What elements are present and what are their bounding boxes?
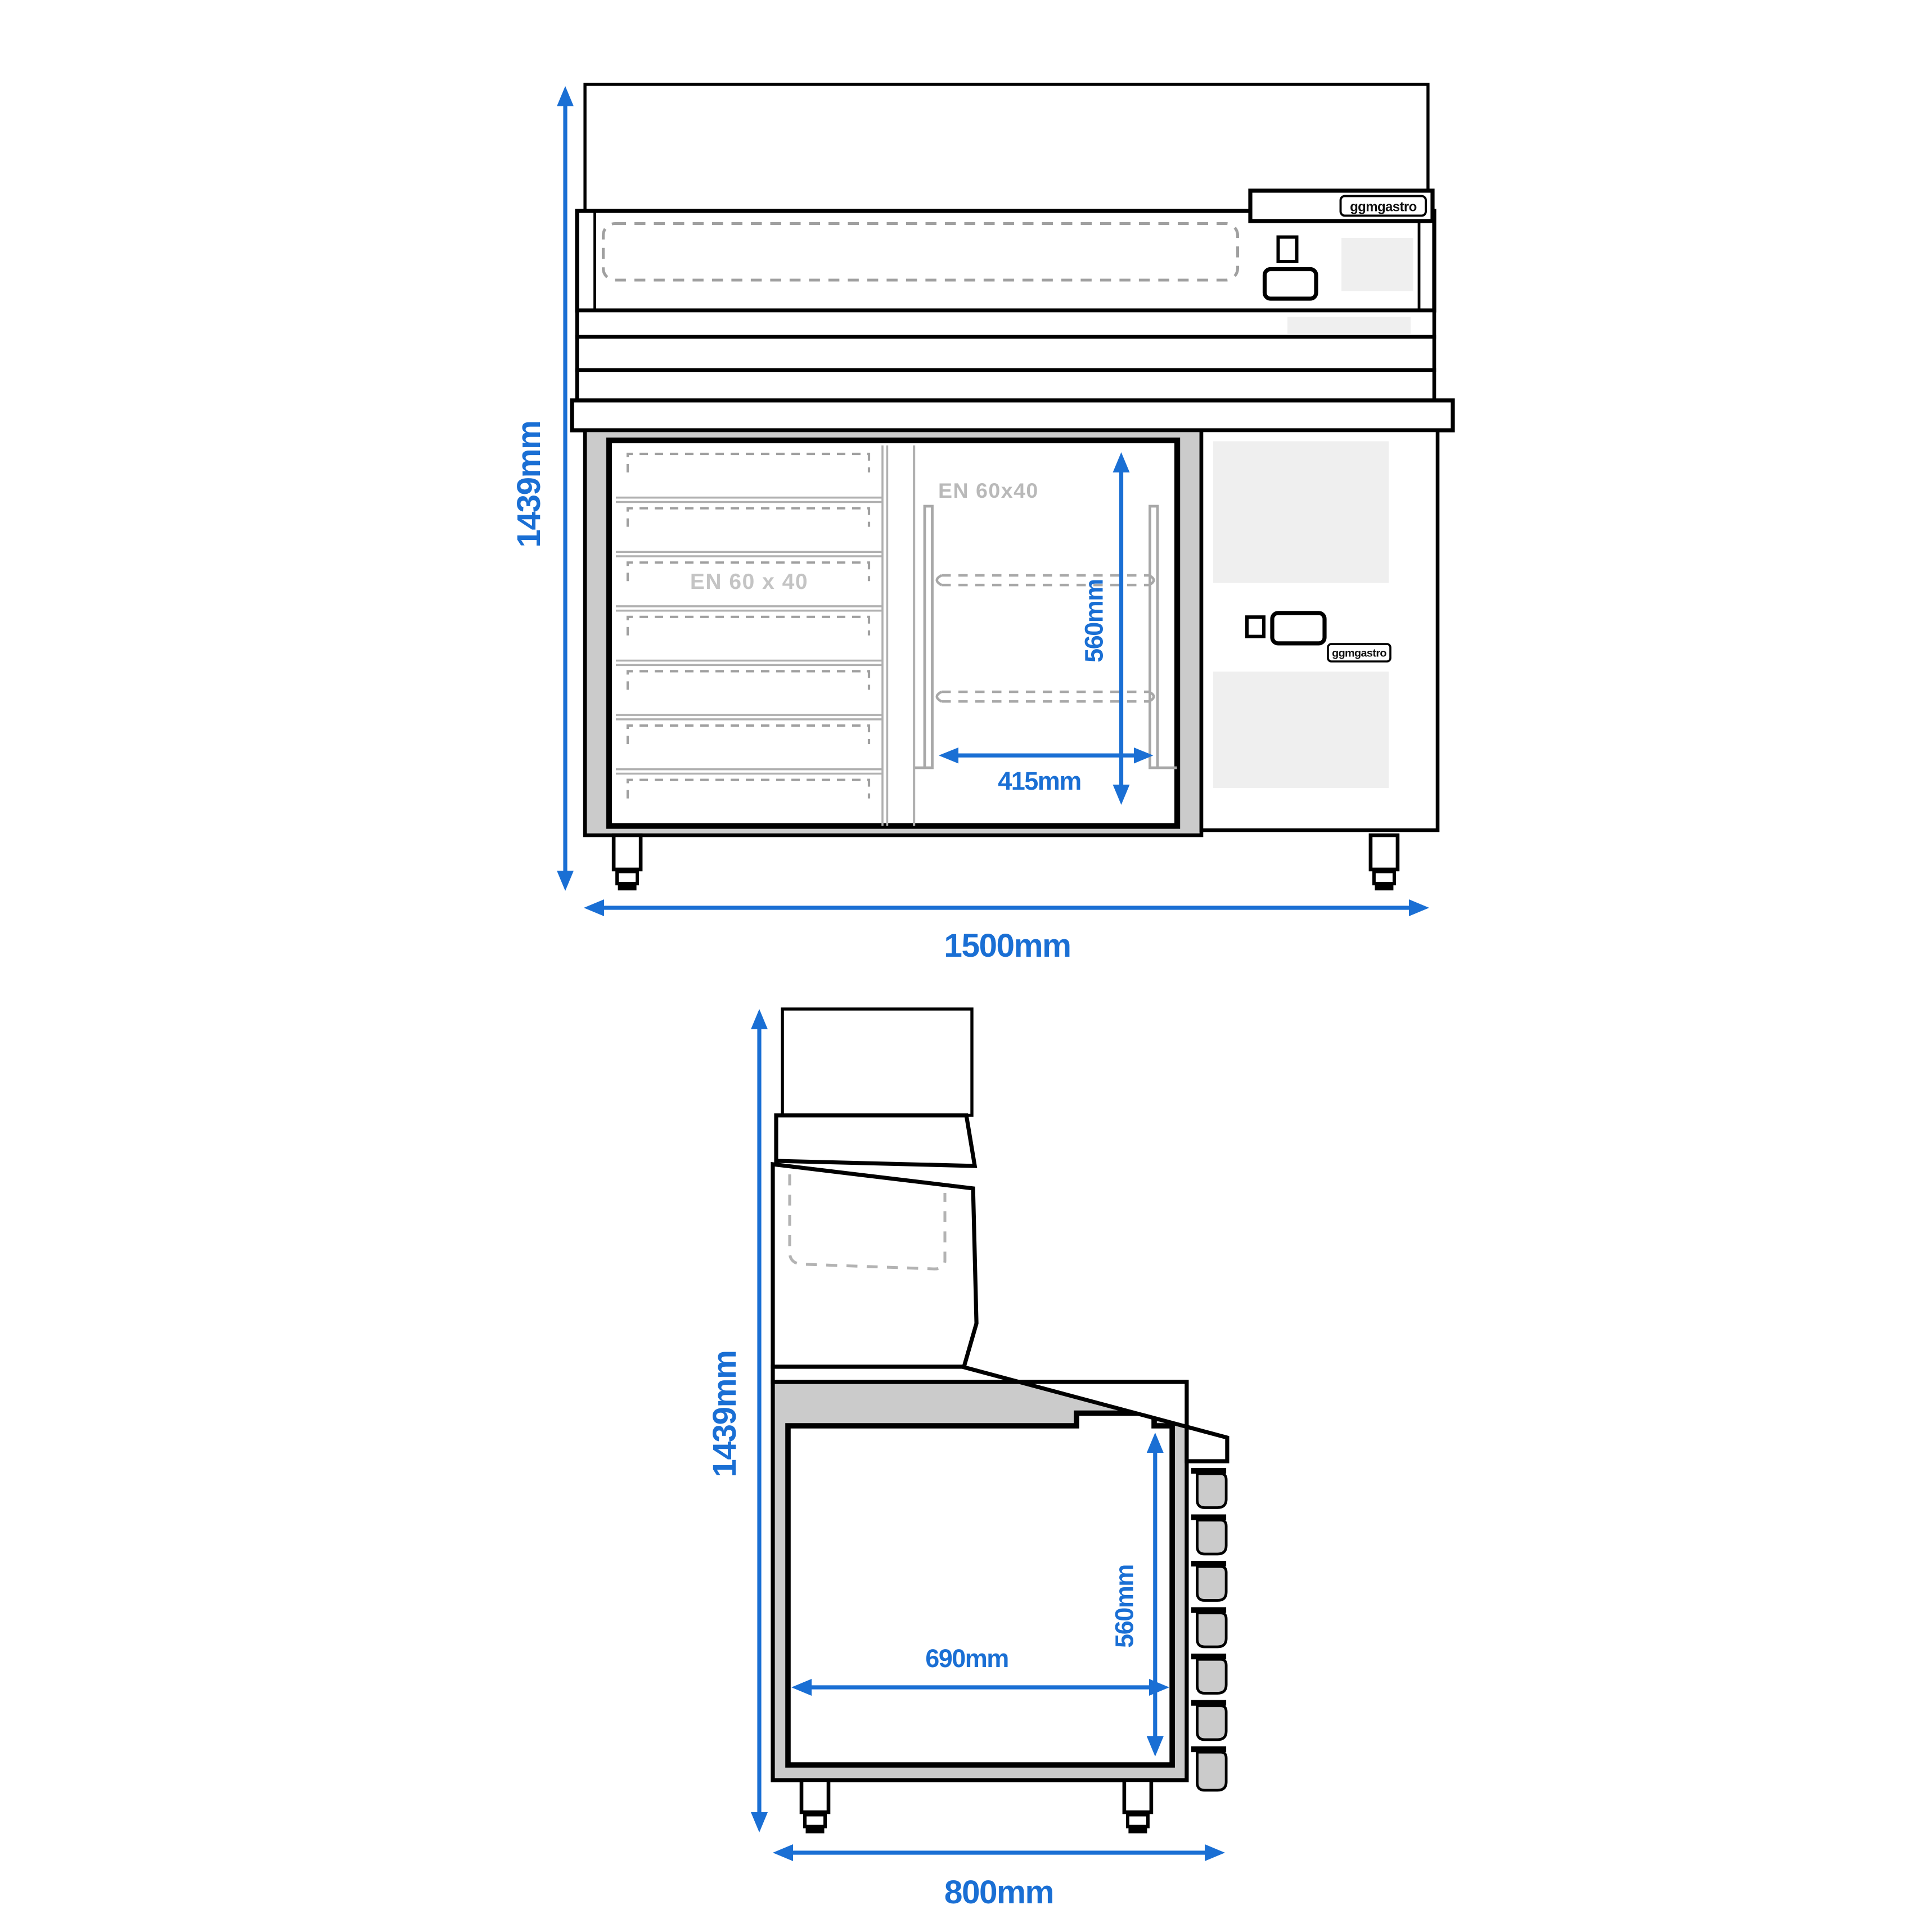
arrowhead-right-icon — [1409, 899, 1429, 916]
side-depth-dimension: 800mm — [773, 1844, 1225, 1911]
side-height-dimension: 1439mm — [706, 1009, 768, 1832]
leg — [1124, 1780, 1151, 1812]
brand-logo-text: ggmgastro — [1350, 200, 1417, 215]
arrowhead-right-icon — [1205, 1844, 1225, 1861]
side-depth-label: 800mm — [944, 1874, 1053, 1911]
front-inner-width-label: 415mm — [998, 767, 1081, 795]
front-door-standard-label: EN 60x40 — [938, 479, 1039, 502]
front-machine-vent-top — [1213, 442, 1389, 583]
leg-pad — [1128, 1827, 1147, 1834]
side-legs — [801, 1780, 1151, 1834]
leg-foot — [1374, 872, 1394, 884]
side-case-collar — [776, 1115, 975, 1166]
leg-foot — [805, 1815, 825, 1827]
leg — [801, 1780, 828, 1812]
bracket — [1191, 1700, 1226, 1740]
front-width-dimension: 1500mm — [584, 899, 1429, 964]
leg-pad — [1375, 884, 1393, 890]
brand-logo-text-small: ggmgastro — [1332, 647, 1386, 660]
front-case-vent-panel — [1341, 238, 1413, 291]
arrowhead-down-icon — [751, 1812, 768, 1832]
front-machine-thermostat-display — [1272, 613, 1325, 643]
front-view: ggmgastro EN — [511, 84, 1453, 964]
front-width-label: 1500mm — [944, 927, 1070, 964]
side-view: 1439mm 800mm 690mm 560mm — [706, 1009, 1227, 1911]
side-height-label: 1439mm — [706, 1350, 743, 1477]
bracket — [1191, 1746, 1226, 1790]
leg-foot — [617, 872, 637, 884]
front-height-dimension: 1439mm — [511, 86, 574, 891]
side-interior-depth-label: 690mm — [925, 1644, 1008, 1673]
arrowhead-up-icon — [557, 86, 574, 106]
front-legs — [614, 835, 1398, 890]
front-band-vent-chip — [1287, 317, 1411, 334]
front-height-label: 1439mm — [511, 421, 547, 547]
leg-foot — [1128, 1815, 1148, 1827]
front-case-thermostat-display — [1265, 269, 1317, 299]
front-band-lower — [577, 370, 1434, 400]
front-band-middle — [577, 337, 1434, 370]
arrowhead-left-icon — [773, 1844, 793, 1861]
arrowhead-up-icon — [751, 1009, 768, 1029]
front-worktop — [572, 400, 1453, 430]
side-drawer-brackets — [1191, 1468, 1226, 1790]
front-door-rail-right — [1150, 506, 1158, 768]
leg — [1371, 835, 1398, 870]
front-inner-height-label: 560mm — [1080, 579, 1109, 663]
drawing-sheet: ggmgastro EN — [0, 0, 1932, 1932]
bracket — [1191, 1468, 1226, 1508]
leg — [614, 835, 641, 870]
bracket — [1191, 1607, 1226, 1647]
leg-pad — [618, 884, 637, 890]
bracket — [1191, 1654, 1226, 1694]
side-backsplash-glass — [782, 1009, 972, 1115]
front-drawer-standard-label: EN 60 x 40 — [690, 570, 808, 594]
front-door-rail-left — [925, 506, 933, 768]
side-interior-height-label: 560mm — [1110, 1565, 1139, 1648]
arrowhead-down-icon — [557, 871, 574, 891]
arrowhead-left-icon — [584, 899, 604, 916]
bracket — [1191, 1561, 1226, 1601]
bracket — [1191, 1515, 1226, 1555]
leg-pad — [806, 1827, 825, 1834]
front-case-switch — [1278, 237, 1297, 262]
technical-drawing: ggmgastro EN — [0, 0, 1932, 1932]
front-machine-vent-bottom — [1213, 672, 1389, 788]
front-machine-switch — [1247, 617, 1264, 637]
